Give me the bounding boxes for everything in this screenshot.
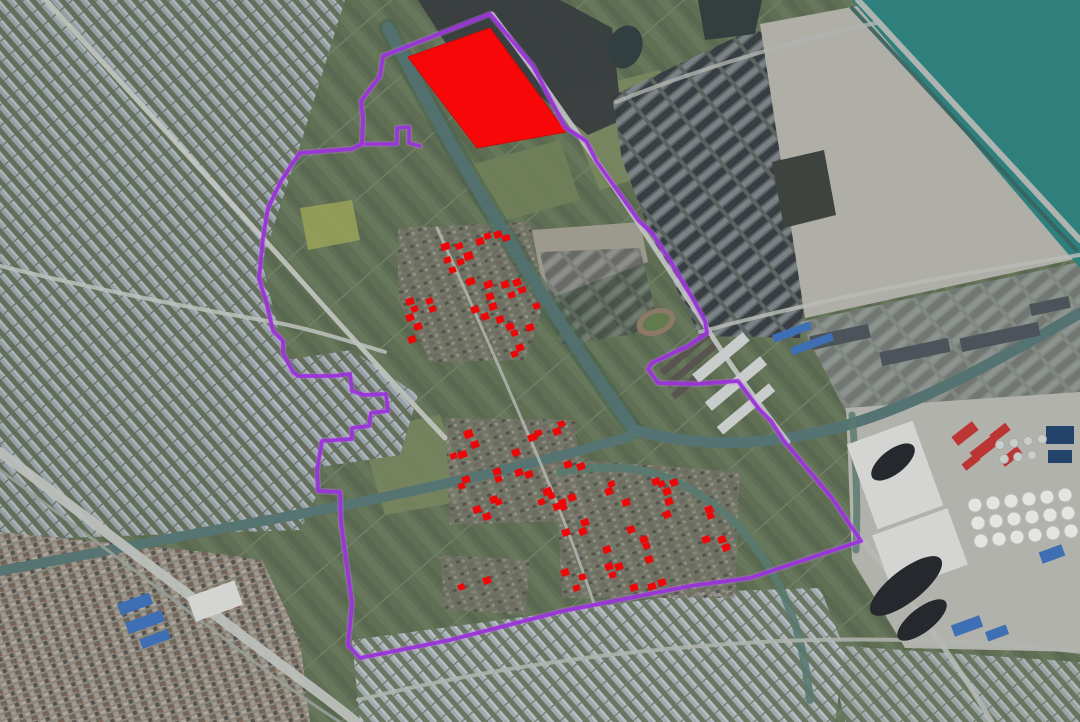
atmosphere-tint xyxy=(0,0,1080,722)
satellite-map-view[interactable] xyxy=(0,0,1080,722)
satellite-map xyxy=(0,0,1080,722)
